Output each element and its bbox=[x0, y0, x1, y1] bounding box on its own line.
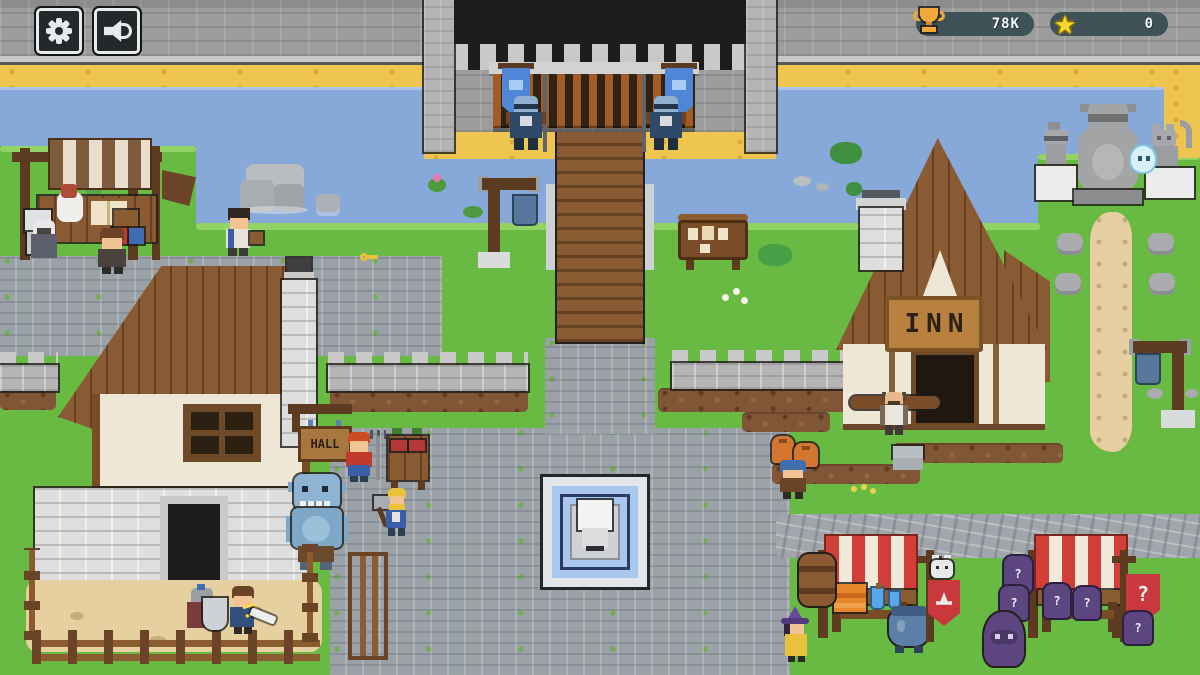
knight-statue[interactable] bbox=[1036, 122, 1076, 200]
leg bbox=[788, 656, 795, 662]
statue-belly bbox=[1092, 144, 1124, 180]
ghost-eye bbox=[1138, 156, 1142, 161]
farmer-npc[interactable] bbox=[346, 432, 386, 482]
leg bbox=[360, 476, 368, 482]
well-pump-right[interactable] bbox=[1129, 339, 1195, 431]
bush bbox=[758, 244, 792, 266]
trophy-base bbox=[922, 27, 936, 32]
boulder bbox=[1057, 233, 1083, 255]
pebble bbox=[1185, 389, 1198, 398]
dirt-strip-right bbox=[658, 388, 860, 412]
potion-bottle bbox=[870, 586, 885, 610]
boulder bbox=[1149, 273, 1175, 295]
leg bbox=[514, 138, 524, 150]
visor bbox=[654, 104, 678, 109]
overalls bbox=[348, 465, 370, 476]
dirt-strip-far-left bbox=[0, 390, 56, 410]
dress bbox=[785, 634, 807, 656]
hooded-figure[interactable] bbox=[31, 220, 59, 262]
leg bbox=[228, 248, 237, 256]
fence-body bbox=[0, 365, 58, 391]
statue-eyes bbox=[1088, 114, 1128, 122]
fence-merlons bbox=[328, 352, 528, 365]
statue-body bbox=[1046, 144, 1066, 166]
gate-bar bbox=[372, 556, 378, 656]
robe bbox=[31, 234, 57, 258]
leg bbox=[783, 492, 791, 499]
pebble bbox=[1147, 388, 1163, 399]
produce-stand[interactable] bbox=[388, 428, 430, 490]
sack-tie bbox=[802, 446, 810, 450]
shine bbox=[897, 620, 905, 632]
bush bbox=[846, 182, 862, 196]
cauldron-leg bbox=[895, 646, 904, 653]
book-layer bbox=[834, 593, 866, 598]
training-knight-npc[interactable] bbox=[181, 588, 227, 638]
hall-sign[interactable]: HALL bbox=[298, 420, 352, 462]
vest bbox=[903, 405, 908, 425]
gate-tower-right bbox=[746, 0, 776, 152]
river-rock-small bbox=[316, 194, 340, 212]
stone-fence-edge bbox=[0, 352, 58, 392]
trophy-icon bbox=[912, 6, 946, 38]
sack-tie bbox=[779, 439, 787, 443]
chest-plate bbox=[520, 116, 532, 126]
yard-gate[interactable] bbox=[348, 552, 388, 660]
goat bbox=[55, 184, 85, 226]
book-stack bbox=[834, 584, 866, 612]
stone-steps bbox=[893, 446, 923, 470]
mystery-sack[interactable]: ? bbox=[1124, 612, 1152, 644]
leg bbox=[895, 425, 903, 435]
eye bbox=[302, 486, 308, 492]
dirt-strip-left bbox=[330, 390, 528, 412]
fence-posts bbox=[24, 548, 40, 640]
gate-guard-right[interactable] bbox=[646, 96, 686, 154]
eye bbox=[995, 634, 1000, 639]
pump-base bbox=[1161, 410, 1195, 428]
witch-npc[interactable] bbox=[779, 606, 813, 662]
pitchfork-pole bbox=[376, 436, 380, 480]
stall-awning-brown bbox=[48, 138, 152, 190]
eye bbox=[945, 566, 948, 569]
gold-key[interactable] bbox=[360, 250, 378, 263]
white-flowers bbox=[722, 288, 750, 306]
leg bbox=[398, 528, 405, 536]
barrel-band bbox=[799, 588, 835, 594]
pedestal-top bbox=[578, 500, 612, 530]
face bbox=[230, 218, 248, 229]
body bbox=[98, 249, 126, 267]
cat-tail bbox=[1180, 120, 1192, 148]
sack-carrier-npc[interactable] bbox=[770, 436, 822, 500]
eye bbox=[1008, 634, 1013, 639]
face bbox=[350, 441, 368, 452]
speaker-icon bbox=[104, 18, 130, 44]
star-value: 0 bbox=[1145, 16, 1154, 32]
hall-sign-text: HALL bbox=[298, 426, 352, 462]
pebble bbox=[816, 183, 829, 191]
leg bbox=[528, 138, 538, 150]
book-layer bbox=[834, 603, 866, 608]
bucket bbox=[512, 194, 538, 226]
leg bbox=[239, 248, 248, 256]
leg bbox=[654, 138, 664, 150]
crate bbox=[114, 210, 138, 228]
leg bbox=[244, 627, 252, 634]
cat-eye bbox=[1167, 136, 1171, 140]
posted-note bbox=[718, 228, 728, 240]
cat-head bbox=[1152, 130, 1176, 146]
chest-plate bbox=[660, 116, 672, 126]
gate-bar bbox=[360, 556, 366, 656]
pebble bbox=[793, 176, 811, 186]
eye bbox=[322, 486, 328, 492]
plume bbox=[197, 584, 205, 590]
eye bbox=[936, 566, 939, 569]
pedestal-slot bbox=[586, 546, 604, 551]
cauldron-rim bbox=[891, 606, 927, 616]
fisherman-npc[interactable] bbox=[222, 208, 264, 264]
statue-visor bbox=[1044, 136, 1068, 141]
flower bbox=[870, 488, 876, 494]
posted-note bbox=[688, 228, 698, 240]
leg bbox=[114, 267, 123, 274]
chimney-rim bbox=[284, 272, 314, 280]
face bbox=[790, 624, 804, 634]
critter-body bbox=[931, 560, 953, 578]
star-icon: ★ bbox=[1044, 0, 1086, 44]
white-critter[interactable] bbox=[929, 552, 955, 580]
leg bbox=[102, 267, 111, 274]
visor bbox=[514, 104, 538, 109]
barrel bbox=[799, 554, 835, 606]
flower bbox=[722, 294, 729, 301]
gear-icon bbox=[46, 18, 72, 44]
body bbox=[780, 478, 806, 492]
stone-fence-right bbox=[672, 350, 864, 390]
trophy-value: 78K bbox=[992, 16, 1020, 32]
ghost[interactable] bbox=[1129, 144, 1157, 174]
key-stem bbox=[367, 255, 378, 259]
hall-door[interactable] bbox=[168, 504, 220, 586]
banner-crown bbox=[509, 80, 523, 90]
inn-door[interactable] bbox=[911, 350, 979, 428]
stand-leg bbox=[418, 480, 425, 490]
step bbox=[893, 458, 923, 470]
meat bbox=[391, 440, 407, 451]
leg bbox=[668, 138, 678, 150]
pump-base bbox=[478, 252, 510, 268]
flower bbox=[733, 288, 740, 295]
flower bbox=[741, 297, 748, 304]
ghost-eye bbox=[1146, 156, 1150, 161]
dirt-spot bbox=[70, 612, 84, 620]
window-rail bbox=[191, 430, 253, 436]
dirt-patch-1 bbox=[742, 412, 830, 432]
cat-body bbox=[1154, 146, 1178, 168]
speaker-wave bbox=[121, 23, 132, 39]
fence-body bbox=[672, 363, 864, 389]
mystery-sack[interactable]: ? bbox=[1044, 584, 1070, 618]
shield bbox=[203, 598, 227, 630]
stall-awning-red bbox=[1034, 534, 1128, 592]
tunic bbox=[392, 512, 400, 522]
yard-fence-right bbox=[302, 544, 318, 642]
teeth bbox=[300, 501, 330, 507]
leg bbox=[798, 656, 805, 662]
well-pump-left[interactable] bbox=[478, 176, 540, 268]
cat-eye bbox=[1157, 136, 1161, 140]
bridge-stairs[interactable] bbox=[557, 116, 643, 342]
bush bbox=[830, 142, 862, 164]
boulder bbox=[1055, 273, 1081, 295]
pedestal bbox=[1036, 166, 1076, 200]
mystery-sack[interactable]: ? bbox=[1074, 587, 1100, 619]
cobble-path bbox=[545, 338, 655, 434]
bridge-rail-left bbox=[546, 184, 557, 270]
gear-hole bbox=[55, 27, 63, 35]
game-viewport: HALL INN bbox=[0, 0, 1200, 675]
lily-bloom bbox=[433, 174, 441, 182]
foot bbox=[320, 562, 332, 570]
bulletin-board[interactable] bbox=[678, 214, 748, 272]
inn-chimney bbox=[860, 208, 902, 270]
yard-fence-left bbox=[24, 548, 40, 640]
fountain[interactable] bbox=[540, 474, 650, 590]
dwarf-smith-npc[interactable] bbox=[374, 488, 412, 542]
wizard-hat-emblem bbox=[936, 592, 952, 608]
lilypad-flower bbox=[428, 178, 446, 192]
sound-button[interactable] bbox=[94, 8, 140, 54]
brown-pennant bbox=[162, 170, 196, 206]
cauldron-body bbox=[889, 612, 929, 646]
inn-sign[interactable]: INN bbox=[885, 296, 983, 352]
fence-body bbox=[328, 365, 528, 391]
stone-fence-left bbox=[328, 352, 528, 392]
fence-posts bbox=[32, 630, 320, 664]
cork bbox=[876, 583, 882, 589]
settings-button[interactable] bbox=[36, 8, 82, 54]
swordsman-npc[interactable] bbox=[226, 586, 274, 636]
meat bbox=[409, 440, 425, 451]
yellow-flowers bbox=[851, 484, 877, 496]
flower bbox=[861, 484, 867, 490]
step bbox=[893, 446, 923, 458]
vest bbox=[880, 405, 885, 425]
timber bbox=[92, 394, 100, 486]
cauldron[interactable] bbox=[889, 606, 929, 652]
posted-note bbox=[702, 226, 714, 240]
plume bbox=[1048, 122, 1060, 130]
plinth bbox=[1074, 190, 1142, 204]
strap bbox=[228, 229, 234, 248]
leg bbox=[885, 425, 893, 435]
pedestal-base bbox=[582, 528, 608, 548]
barrel-band bbox=[799, 566, 835, 572]
dirt-footpath bbox=[1090, 212, 1132, 452]
leg bbox=[388, 528, 395, 536]
gate-tower-left bbox=[424, 0, 454, 152]
yard-fence-bottom bbox=[32, 630, 320, 670]
cauldron-leg bbox=[914, 646, 923, 653]
bucket bbox=[1135, 353, 1161, 385]
belly bbox=[302, 516, 330, 542]
fence-merlons bbox=[672, 350, 864, 363]
mystery-stall[interactable]: ? ? bbox=[1028, 534, 1128, 634]
leg bbox=[234, 627, 242, 634]
villager-npc[interactable] bbox=[96, 228, 132, 274]
sign-beam bbox=[288, 404, 352, 414]
trophy-cup bbox=[920, 8, 938, 22]
pump-post bbox=[1172, 351, 1184, 417]
mug bbox=[250, 232, 263, 244]
posted-note bbox=[700, 244, 710, 253]
fence-posts bbox=[302, 544, 318, 642]
pump-post bbox=[488, 188, 500, 252]
flower bbox=[851, 486, 857, 492]
pedestal bbox=[1146, 168, 1194, 198]
boulder bbox=[1148, 233, 1174, 255]
trophy-handle bbox=[937, 11, 945, 21]
leg bbox=[350, 476, 358, 482]
banner-crown bbox=[672, 80, 686, 90]
bridge-rail-right bbox=[643, 184, 654, 270]
face bbox=[102, 238, 122, 249]
goat-head bbox=[61, 184, 77, 198]
hall-window bbox=[183, 404, 261, 462]
purple-blob-npc[interactable] bbox=[984, 612, 1024, 666]
book-spine bbox=[107, 201, 110, 225]
fence-merlons bbox=[0, 352, 58, 365]
gate-guard-left[interactable] bbox=[506, 96, 546, 154]
leg bbox=[795, 492, 803, 499]
innkeeper-npc[interactable] bbox=[878, 392, 910, 440]
